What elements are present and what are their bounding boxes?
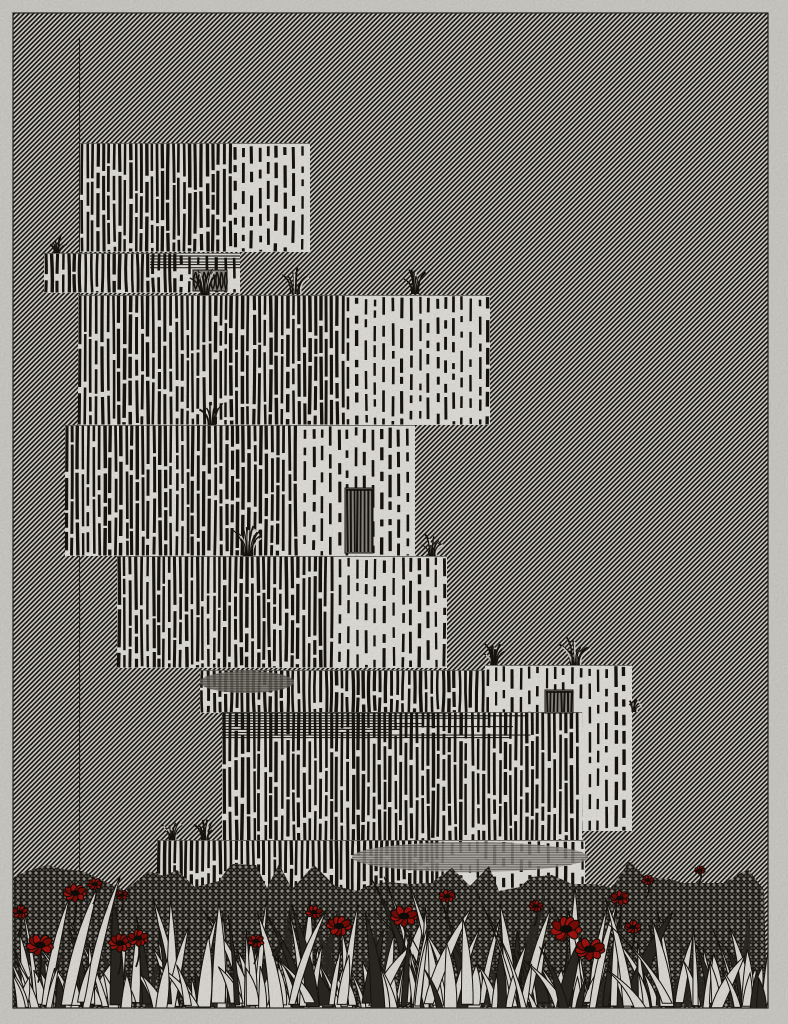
generative-artwork — [0, 0, 788, 1024]
artwork-page — [0, 0, 788, 1024]
paper-grain — [0, 0, 788, 1024]
